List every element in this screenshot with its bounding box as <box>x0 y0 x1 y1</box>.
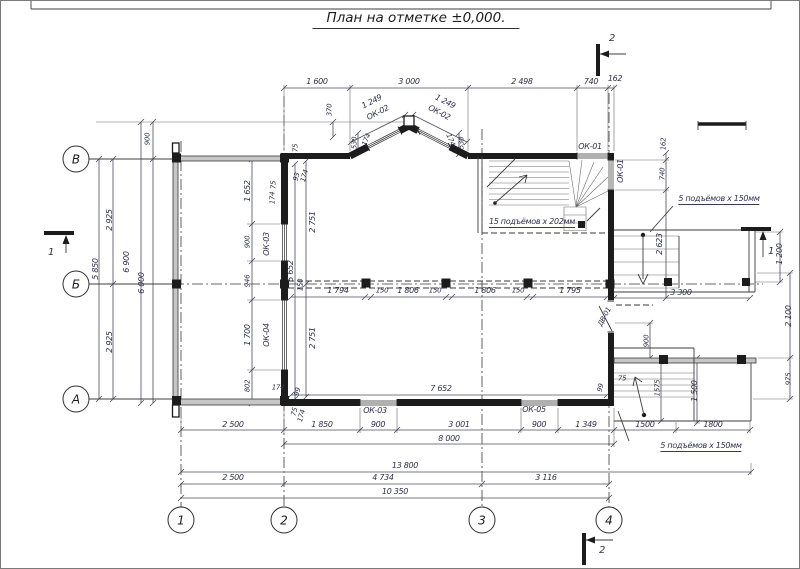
axis-bubble-2: 2 <box>271 507 298 534</box>
section-mark-1-right-label: 1 <box>768 247 774 257</box>
dim-label: 162 <box>608 75 622 83</box>
dim-label: 2 500 <box>222 421 243 429</box>
note-stairs: 15 подъёмов x 202мм <box>489 218 575 228</box>
stair-direction-arrow <box>495 175 527 203</box>
column <box>172 280 181 289</box>
dim-label: 1500 <box>635 421 654 429</box>
dim-label: 4 734 <box>372 474 393 482</box>
section-mark-2-top <box>596 44 600 76</box>
axis-bubble-В: В <box>63 146 90 173</box>
windows <box>280 116 653 407</box>
section-mark-2-bottom-label: 2 <box>599 546 605 556</box>
window-tag-ok03-left: ОК-03 <box>263 232 271 256</box>
dim-label: 2 100 <box>785 305 793 326</box>
dim-label: 5 652 <box>287 260 295 281</box>
column <box>742 278 750 286</box>
window-tag-ok05: ОК-05 <box>522 406 546 414</box>
dim-label: 1 349 <box>575 421 596 429</box>
dim-label: 2 925 <box>106 331 114 352</box>
dim-label: 946 <box>245 275 252 287</box>
section-mark-1-left <box>44 231 74 235</box>
porch-bottom <box>614 348 756 421</box>
dim-label: 2 925 <box>106 209 114 230</box>
note-porch-steps-right: 5 подъёмов x 150мм <box>678 195 759 205</box>
dim-label: 975 <box>786 373 793 385</box>
dim-label: 75 <box>618 376 626 383</box>
dim-label: 2 751 <box>309 211 317 232</box>
section-mark-1-right <box>741 227 771 231</box>
pilaster-bottom <box>173 405 180 417</box>
dim-label: 150 <box>298 279 305 291</box>
dim-label: 174 <box>270 192 277 204</box>
section-mark-2-top-label: 2 <box>609 34 615 44</box>
dim-label: 740 <box>660 168 667 180</box>
dim-label: 2 500 <box>222 474 243 482</box>
dim-label: 3 000 <box>398 78 419 86</box>
dim-label: 1 794 <box>327 287 348 295</box>
dim-label: 1 795 <box>559 287 580 295</box>
dim-label: 8 000 <box>438 435 459 443</box>
window-tag-ok01-top: ОК-01 <box>578 143 602 151</box>
dim-label: 530 <box>352 137 359 149</box>
dim-label: 900 <box>532 421 546 429</box>
dim-label: 7 652 <box>430 385 451 393</box>
dim-label: 5 850 <box>92 258 100 279</box>
dim-label: 150 <box>429 288 441 295</box>
section-mark-1-left-label: 1 <box>48 248 54 258</box>
window-tag-ok04: ОК-04 <box>263 323 271 347</box>
axis-bubble-А: А <box>63 386 90 413</box>
dim-label: 3 001 <box>448 421 469 429</box>
dim-label: 174 <box>272 385 284 392</box>
section-mark-2-bottom <box>582 533 586 565</box>
dim-label: 370 <box>327 104 334 116</box>
column <box>362 279 371 288</box>
dim-label: 900 <box>145 133 152 145</box>
dim-label: 2 623 <box>656 233 664 254</box>
drawing-title: План на отметке ±0,000. <box>312 10 519 29</box>
floor-plan-sheet: План на отметке ±0,000. ВБА1234 1 6003 0… <box>0 0 800 569</box>
dim-label: 2 751 <box>309 327 317 348</box>
dim-label: 150 <box>376 288 388 295</box>
main-walls <box>280 126 615 406</box>
dim-label: 13 800 <box>392 462 418 470</box>
steps-down-arrow <box>638 235 648 284</box>
column <box>659 355 668 364</box>
pilaster-top <box>173 143 180 153</box>
dim-label: 900 <box>644 335 651 347</box>
axis-bubble-3: 3 <box>469 507 496 534</box>
column <box>280 154 289 163</box>
column <box>172 396 181 405</box>
dim-label: 6 000 <box>138 272 146 293</box>
dim-label: 10 350 <box>382 488 408 496</box>
dim-label: 1 600 <box>306 78 327 86</box>
dim-label: 1 200 <box>776 243 784 264</box>
dim-label: 3 116 <box>535 474 556 482</box>
porch-right <box>614 121 755 292</box>
axis-bubble-4: 4 <box>596 507 623 534</box>
dim-label: 75 <box>271 181 278 189</box>
dim-label: 6 900 <box>123 251 131 272</box>
floor-plan-drawing <box>1 1 800 569</box>
column <box>442 279 451 288</box>
drawing-frame <box>31 1 771 9</box>
dim-label: 900 <box>371 421 385 429</box>
dim-label: 75 <box>293 144 300 152</box>
bay-peak-post <box>404 116 414 126</box>
axis-bubble-Б: Б <box>63 271 90 298</box>
dim-label: 2 498 <box>511 78 532 86</box>
porch-beam <box>614 358 756 363</box>
axis-bubble-1: 1 <box>168 507 195 534</box>
column <box>664 278 672 286</box>
window-tag-ok01-right: ОК-01 <box>617 159 625 183</box>
dim-label: 740 <box>584 78 598 86</box>
dim-label: 1575 <box>655 380 662 397</box>
dim-label: 162 <box>661 138 668 150</box>
dim-label: 802 <box>245 380 252 392</box>
column <box>606 280 615 289</box>
dim-label: 1 850 <box>311 421 332 429</box>
column <box>280 396 289 405</box>
dim-label: 1 500 <box>691 380 699 401</box>
window-tag-ok03-bottom: ОК-03 <box>363 407 387 415</box>
dim-label: 1800 <box>703 421 722 429</box>
dim-label: 3 300 <box>670 289 691 297</box>
note-porch-steps-bottom: 5 подъёмов x 150мм <box>660 442 741 452</box>
dim-label: 900 <box>245 236 252 248</box>
column <box>172 154 181 163</box>
dim-label: 530 <box>459 137 466 149</box>
column <box>737 355 746 364</box>
dim-label: 1 652 <box>244 180 252 201</box>
dim-label: 1 806 <box>474 287 495 295</box>
steps-up-arrow <box>633 377 644 415</box>
terrace <box>172 143 281 417</box>
dim-label: 1 806 <box>397 287 418 295</box>
stair-column <box>578 221 585 228</box>
dim-label: 150 <box>512 288 524 295</box>
dim-label: 1 700 <box>244 324 252 345</box>
column <box>524 279 533 288</box>
